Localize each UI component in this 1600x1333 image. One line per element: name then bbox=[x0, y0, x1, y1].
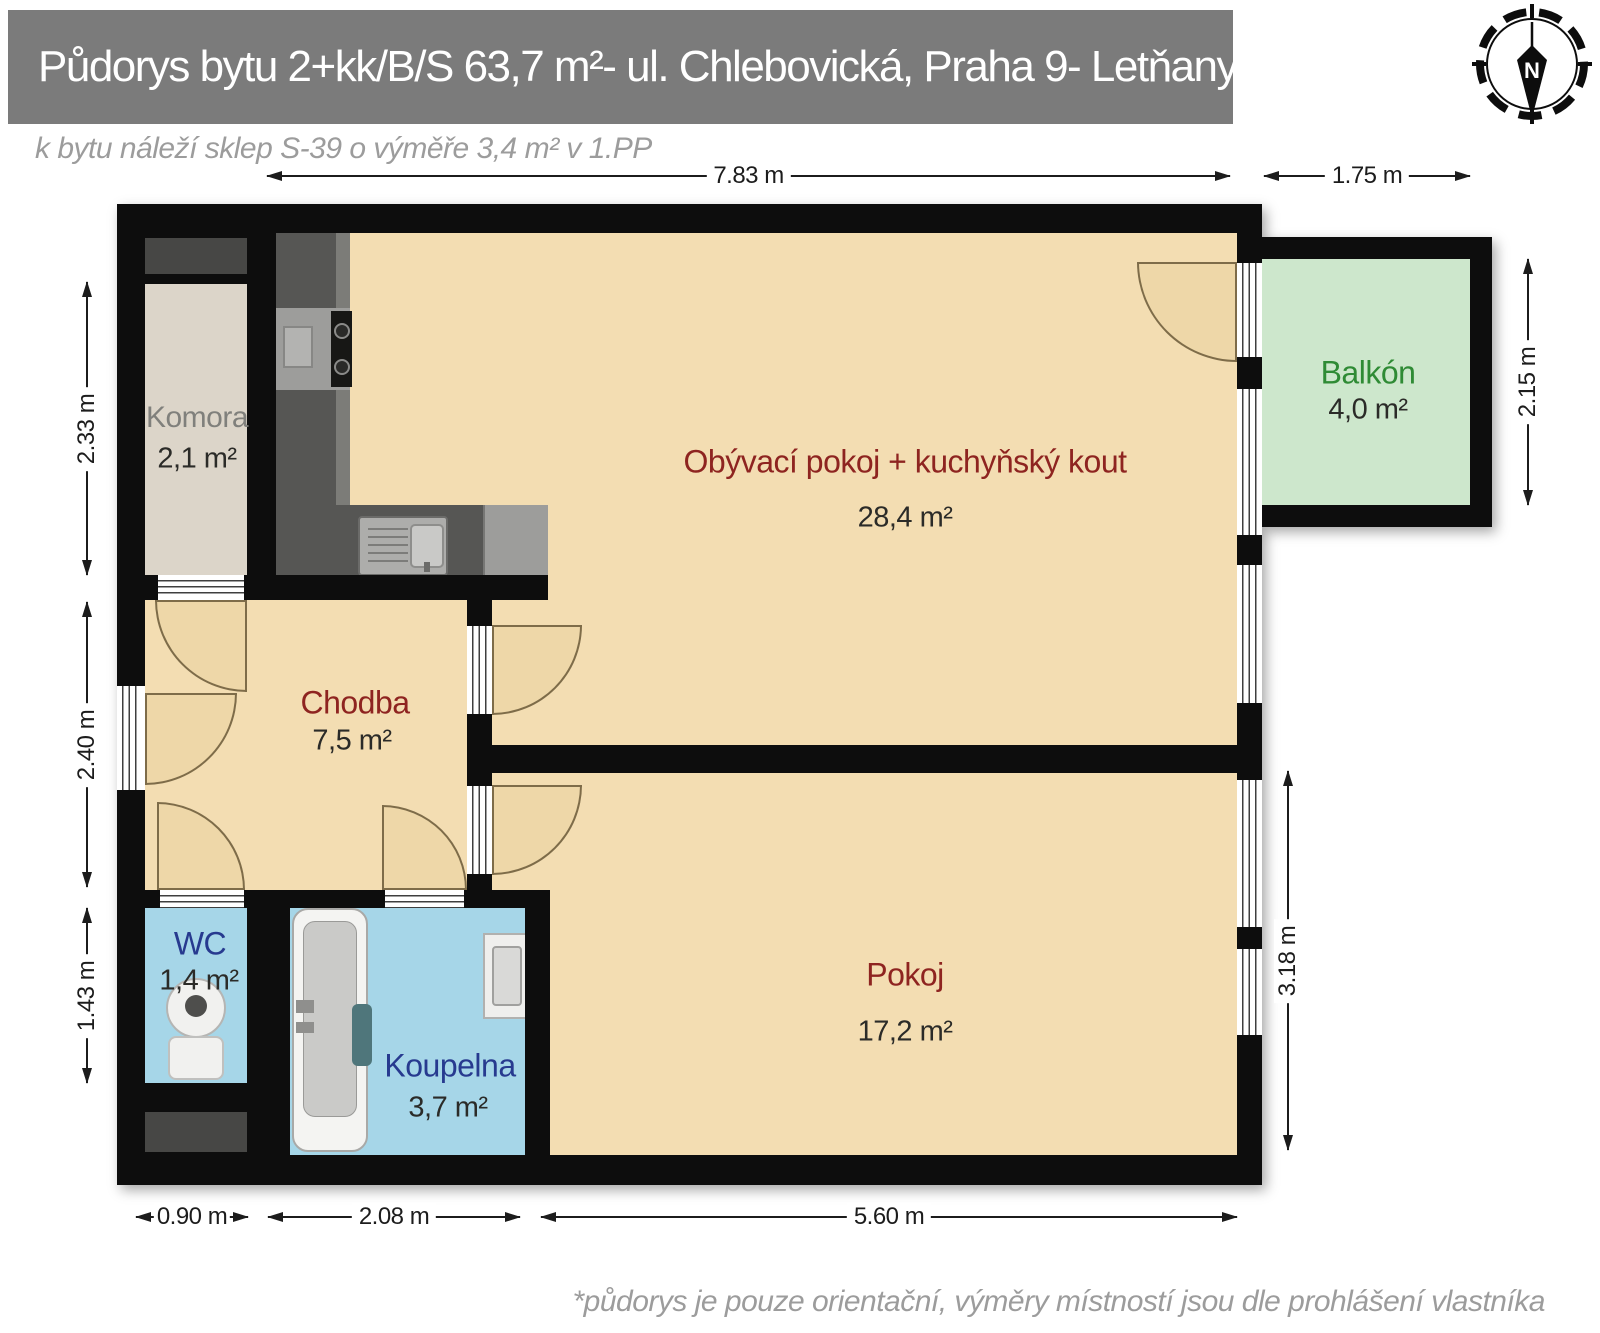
toilet-tank bbox=[168, 1036, 224, 1080]
compass-north-label: N bbox=[1524, 58, 1540, 83]
dim-label: 2.15 m bbox=[1514, 340, 1542, 424]
room-area-komora: 2,1 m² bbox=[157, 443, 236, 476]
burner bbox=[334, 323, 350, 339]
fridge bbox=[483, 505, 548, 578]
wall-balcony-bottom bbox=[1262, 505, 1492, 527]
wall-balcony-top bbox=[1262, 237, 1492, 259]
window bbox=[1237, 946, 1262, 1038]
koupelna-door-opening bbox=[382, 890, 467, 908]
dim-top-balcony: 1.75 m bbox=[1264, 175, 1470, 177]
wall-wc-bottom bbox=[117, 1083, 290, 1108]
room-label-pokoj: Pokoj bbox=[866, 957, 944, 994]
dim-left-chodba: 2.40 m bbox=[86, 602, 88, 887]
room-area-living: 28,4 m² bbox=[858, 502, 953, 535]
wall-living-pokoj bbox=[467, 745, 1262, 773]
dim-right-pokoj: 3.18 m bbox=[1287, 771, 1289, 1150]
dim-label: 2.08 m bbox=[352, 1203, 436, 1231]
dim-bottom-pokoj: 5.60 m bbox=[541, 1216, 1237, 1218]
shaft-below-wc bbox=[145, 1112, 247, 1152]
sink-drainboard bbox=[368, 528, 408, 566]
wall-komora-right bbox=[247, 233, 276, 600]
sink-faucet bbox=[424, 562, 430, 572]
dim-label: 2.33 m bbox=[73, 386, 101, 470]
living-door-opening bbox=[467, 623, 492, 717]
room-area-koupelna: 3,7 m² bbox=[408, 1092, 487, 1125]
window bbox=[1237, 386, 1262, 538]
dim-left-wc: 1.43 m bbox=[86, 908, 88, 1083]
compass-icon: N bbox=[1462, 0, 1600, 135]
wall-wc-koupelna bbox=[247, 890, 290, 1108]
header-bar: Půdorys bytu 2+kk/B/S 63,7 m²- ul. Chleb… bbox=[8, 10, 1233, 124]
room-label-koupelna: Koupelna bbox=[384, 1048, 515, 1085]
wall-koupelna-right bbox=[525, 890, 550, 1185]
dim-bottom-koupelna: 2.08 m bbox=[268, 1216, 520, 1218]
room-floor-pokoj-upper bbox=[492, 773, 1237, 908]
dim-label: 1.43 m bbox=[73, 953, 101, 1037]
room-area-chodba: 7,5 m² bbox=[312, 725, 391, 758]
dim-bottom-wc: 0.90 m bbox=[136, 1216, 248, 1218]
room-area-wc: 1,4 m² bbox=[159, 965, 238, 998]
wall-top bbox=[117, 204, 1262, 233]
page-title: Půdorys bytu 2+kk/B/S 63,7 m²- ul. Chleb… bbox=[38, 10, 1237, 124]
window bbox=[1237, 562, 1262, 706]
dim-top-main: 7.83 m bbox=[267, 175, 1230, 177]
bathtub-tap bbox=[296, 1022, 314, 1033]
bath-accessory bbox=[352, 1004, 372, 1066]
washing-machine-door bbox=[492, 946, 522, 1006]
bathtub-basin bbox=[303, 921, 357, 1117]
stove-control bbox=[283, 326, 313, 368]
kitchen-sink bbox=[358, 516, 448, 576]
pokoj-door-opening bbox=[467, 783, 492, 877]
shaft-above-komora bbox=[145, 238, 247, 274]
dim-label: 5.60 m bbox=[847, 1203, 931, 1231]
balcony-door-opening bbox=[1237, 260, 1262, 360]
dim-right-balcony: 2.15 m bbox=[1527, 259, 1529, 505]
dim-label: 7.83 m bbox=[706, 162, 790, 190]
footer-disclaimer: *půdorys je pouze orientační, výměry mís… bbox=[572, 1285, 1545, 1319]
dim-label: 2.40 m bbox=[73, 702, 101, 786]
burner bbox=[334, 359, 350, 375]
dim-left-komora: 2.33 m bbox=[86, 282, 88, 575]
room-area-pokoj: 17,2 m² bbox=[858, 1016, 953, 1049]
wc-door-opening bbox=[157, 890, 247, 908]
wall-balcony-right bbox=[1470, 237, 1492, 527]
room-label-living: Obývací pokoj + kuchyňský kout bbox=[684, 444, 1127, 481]
toilet-drain bbox=[185, 995, 207, 1017]
floor-plan-page: Půdorys bytu 2+kk/B/S 63,7 m²- ul. Chleb… bbox=[0, 0, 1600, 1333]
bathtub bbox=[292, 908, 368, 1152]
dim-label: 0.90 m bbox=[154, 1203, 230, 1231]
room-label-komora: Komora bbox=[146, 401, 248, 435]
dim-label: 3.18 m bbox=[1274, 918, 1302, 1002]
dim-label: 1.75 m bbox=[1325, 162, 1409, 190]
washing-machine bbox=[483, 933, 531, 1019]
room-area-balkon: 4,0 m² bbox=[1328, 394, 1407, 427]
room-label-balkon: Balkón bbox=[1321, 355, 1416, 392]
room-label-chodba: Chodba bbox=[300, 685, 409, 722]
entry-door-opening bbox=[117, 683, 145, 793]
komora-door-opening bbox=[155, 575, 247, 600]
bathtub-tap bbox=[296, 1000, 314, 1013]
window bbox=[1237, 777, 1262, 930]
wall-bottom bbox=[117, 1155, 1262, 1185]
subtitle-note: k bytu náleží sklep S-39 o výměře 3,4 m²… bbox=[35, 132, 652, 166]
room-label-wc: WC bbox=[174, 926, 226, 963]
